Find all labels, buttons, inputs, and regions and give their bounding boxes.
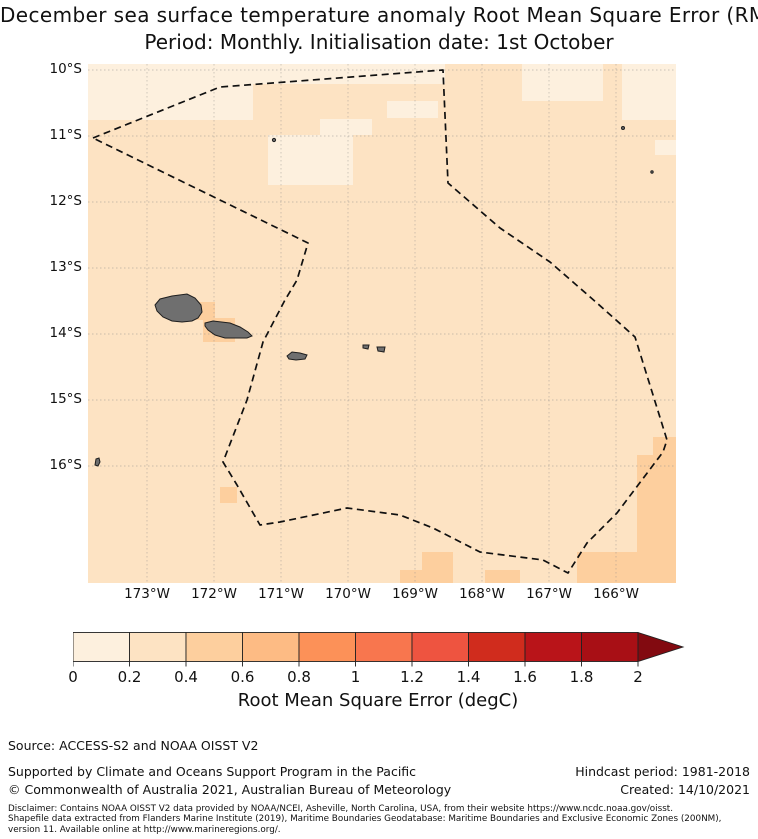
supported-by-text: Supported by Climate and Oceans Support … [8, 764, 416, 779]
rmse-cell [320, 119, 372, 135]
map-base-fill [88, 64, 676, 583]
colorbar-segment [412, 633, 469, 662]
colorbar-tick-label: 1.6 [503, 668, 547, 686]
colorbar-extend-arrow [638, 633, 683, 662]
rmse-cell [400, 570, 422, 583]
rmse-cell [485, 570, 520, 583]
ofu-olosega-island [363, 345, 369, 349]
lat-tick-label: 11°S [22, 127, 82, 143]
colorbar-tick-label: 0.4 [164, 668, 208, 686]
figure: December sea surface temperature anomaly… [0, 0, 758, 839]
title-line-2: Period: Monthly. Initialisation date: 1s… [0, 30, 758, 54]
colorbar-segment [469, 633, 526, 662]
rmse-cell [88, 64, 253, 120]
lat-tick-label: 16°S [22, 457, 82, 473]
colorbar-tick-label: 0 [51, 668, 95, 686]
colorbar-tick-label: 1 [334, 668, 378, 686]
lat-tick-label: 12°S [22, 193, 82, 209]
lat-tick-label: 13°S [22, 259, 82, 275]
lat-tick-label: 14°S [22, 325, 82, 341]
colorbar-tick-label: 0.2 [108, 668, 152, 686]
hindcast-period-text: Hindcast period: 1981-2018 [575, 764, 750, 779]
tau-island [377, 347, 385, 352]
rmse-cell [522, 64, 603, 101]
lon-tick-label: 168°W [452, 586, 512, 602]
northeast-islet-b [651, 171, 653, 173]
rmse-cell [220, 487, 237, 503]
lon-tick-label: 171°W [251, 586, 311, 602]
colorbar-segment [243, 633, 300, 662]
colorbar-segment [130, 633, 187, 662]
colorbar-tick-label: 1.8 [560, 668, 604, 686]
rmse-cell [577, 552, 676, 583]
source-text: Source: ACCESS-S2 and NOAA OISST V2 [8, 738, 258, 753]
colorbar-segment [73, 633, 130, 662]
colorbar-tick-label: 1.4 [447, 668, 491, 686]
northeast-islet-a [622, 127, 625, 130]
colorbar [73, 632, 688, 672]
map-canvas [88, 64, 676, 583]
created-date-text: Created: 14/10/2021 [620, 782, 750, 797]
rmse-cell [387, 101, 438, 118]
disclaimer-line-1: Disclaimer: Contains NOAA OISST V2 data … [8, 804, 758, 814]
lon-tick-label: 173°W [117, 586, 177, 602]
title-line-1: December sea surface temperature anomaly… [0, 3, 758, 27]
disclaimer-line-3: version 11. Available online at http://w… [8, 825, 758, 835]
rmse-cell [422, 552, 453, 583]
swains-island [272, 138, 275, 141]
colorbar-label: Root Mean Square Error (degC) [73, 690, 683, 711]
map-panel: 10°S11°S12°S13°S14°S15°S16°S 173°W172°W1… [88, 64, 676, 583]
rmse-cell [253, 64, 445, 84]
lat-tick-label: 15°S [22, 391, 82, 407]
disclaimer-line-2: Shapefile data extracted from Flanders M… [8, 814, 758, 824]
colorbar-tick-label: 0.8 [277, 668, 321, 686]
colorbar-tick-label: 2 [616, 668, 660, 686]
copyright-text: © Commonwealth of Australia 2021, Austra… [8, 782, 451, 797]
rmse-cell [622, 64, 676, 120]
rmse-cell [655, 140, 676, 155]
colorbar-segment [582, 633, 639, 662]
colorbar-tick-label: 0.6 [221, 668, 265, 686]
lon-tick-label: 167°W [519, 586, 579, 602]
colorbar-tick-label: 1.2 [390, 668, 434, 686]
colorbar-segment [186, 633, 243, 662]
figure-title: December sea surface temperature anomaly… [0, 0, 758, 54]
lat-tick-label: 10°S [22, 61, 82, 77]
lon-tick-label: 169°W [385, 586, 445, 602]
lon-tick-label: 172°W [184, 586, 244, 602]
colorbar-segment [525, 633, 582, 662]
lon-tick-label: 166°W [586, 586, 646, 602]
colorbar-segment [356, 633, 413, 662]
lon-tick-label: 170°W [318, 586, 378, 602]
colorbar-segment [299, 633, 356, 662]
